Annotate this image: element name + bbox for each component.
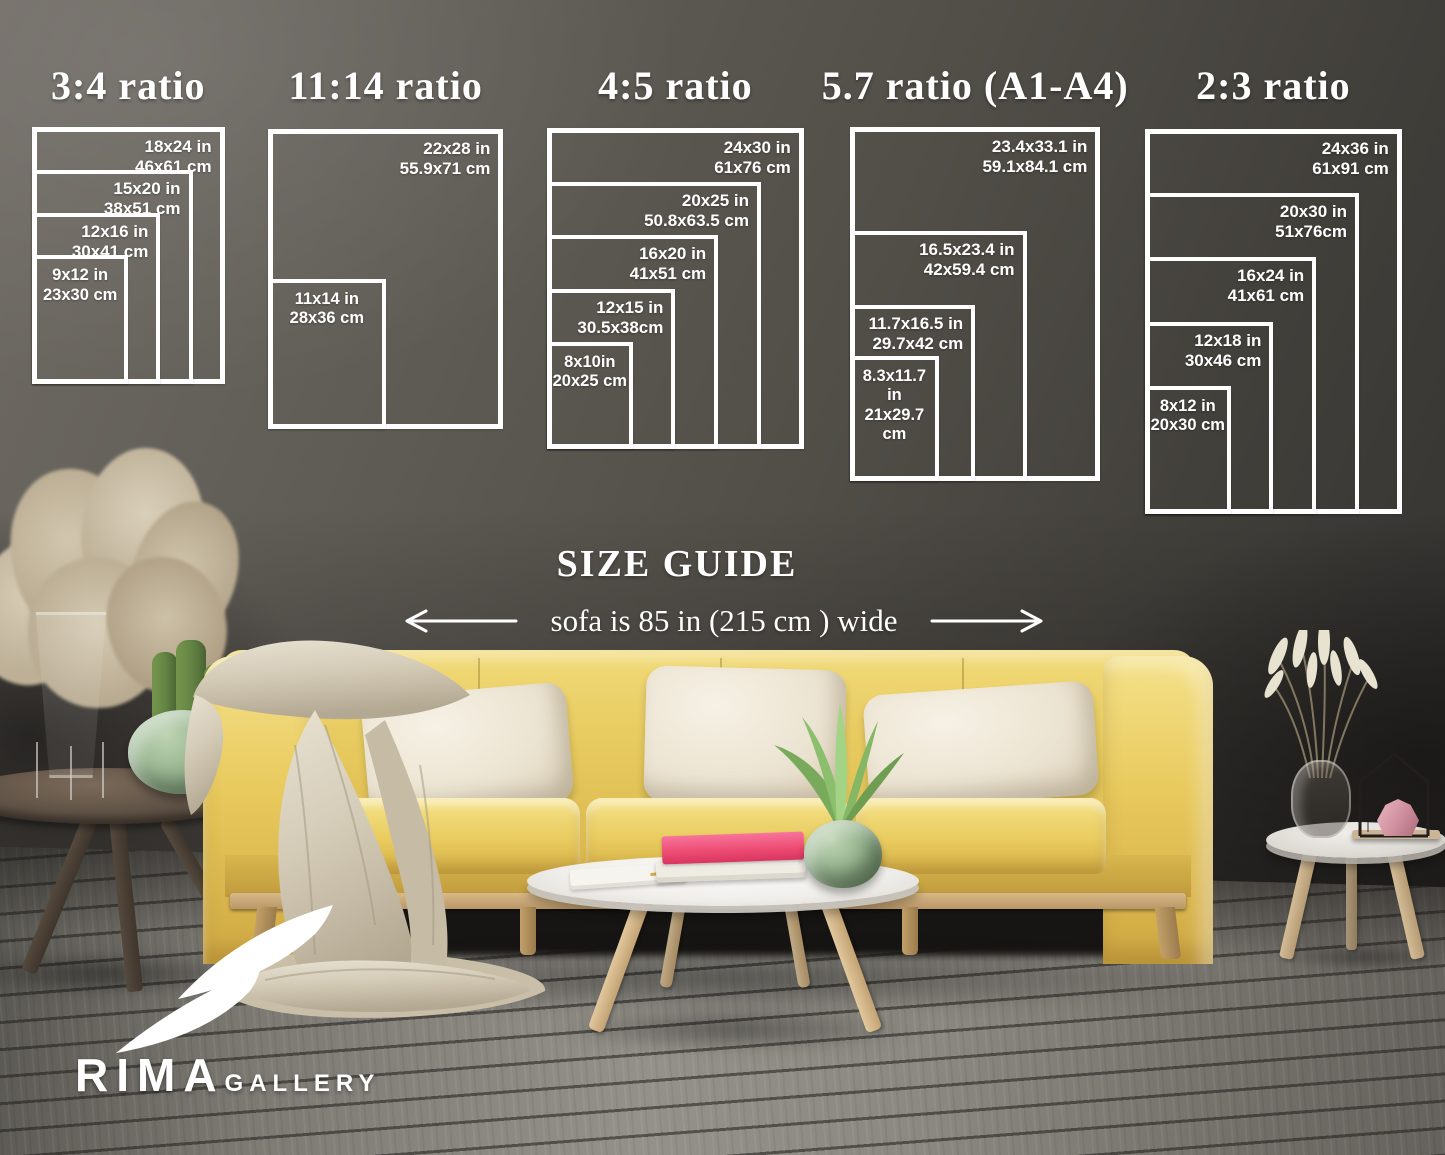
- size-label: 12x15 in30.5x38cm: [577, 298, 663, 338]
- size-cm: 59.1x84.1 cm: [982, 157, 1087, 177]
- size-cm: 20x25 cm: [551, 372, 629, 391]
- ratio-group: 24x36 in61x91 cm20x30 in51x76cm16x24 in4…: [1145, 129, 1402, 514]
- size-label: 8x10in20x25 cm: [551, 353, 629, 392]
- size-cm: 23x30 cm: [36, 286, 124, 305]
- vase-stand: [36, 742, 38, 798]
- size-box: 9x12 in23x30 cm: [32, 255, 128, 383]
- size-inches: 8.3x11.7 in: [854, 367, 935, 406]
- size-guide-heading: SIZE GUIDE: [557, 545, 798, 583]
- size-box: 8x12 in20x30 cm: [1145, 386, 1231, 514]
- size-label: 16.5x23.4 in42x59.4 cm: [919, 240, 1014, 280]
- vase-stand: [102, 742, 104, 798]
- size-cm: 55.9x71 cm: [400, 159, 491, 179]
- size-inches: 15x20 in: [104, 179, 181, 199]
- size-box: 8.3x11.7 in21x29.7 cm: [850, 356, 939, 481]
- sofa-width-text: sofa is 85 in (215 cm ) wide: [551, 602, 898, 639]
- size-box: 8x10in20x25 cm: [547, 342, 633, 449]
- size-inches: 20x30 in: [1275, 202, 1347, 222]
- size-cm: 28x36 cm: [272, 309, 382, 328]
- size-inches: 8x12 in: [1149, 397, 1227, 416]
- size-inches: 20x25 in: [644, 191, 749, 211]
- size-cm: 50.8x63.5 cm: [644, 211, 749, 231]
- size-inches: 8x10in: [551, 353, 629, 372]
- ratio-title: 11:14 ratio: [289, 66, 483, 106]
- ratio-title: 5.7 ratio (A1-A4): [822, 66, 1129, 106]
- book-pink: [662, 832, 805, 865]
- size-cm: 41x61 cm: [1228, 286, 1305, 306]
- arrow-right-icon: [930, 608, 1048, 634]
- ratio-group: 24x30 in61x76 cm20x25 in50.8x63.5 cm16x2…: [547, 128, 804, 449]
- glass-vase: [1291, 760, 1351, 838]
- ratio-title: 3:4 ratio: [51, 66, 206, 106]
- size-inches: 18x24 in: [135, 137, 212, 157]
- size-cm: 30x46 cm: [1185, 351, 1262, 371]
- size-inches: 12x15 in: [577, 298, 663, 318]
- stool-leg: [1346, 846, 1357, 950]
- size-label: 8.3x11.7 in21x29.7 cm: [854, 367, 935, 445]
- size-label: 8x12 in20x30 cm: [1149, 397, 1227, 436]
- size-label: 20x30 in51x76cm: [1275, 202, 1347, 242]
- sofa-leg: [902, 907, 918, 955]
- size-inches: 16.5x23.4 in: [919, 240, 1014, 260]
- size-inches: 11.7x16.5 in: [869, 314, 964, 334]
- size-cm: 42x59.4 cm: [919, 260, 1014, 280]
- vase-stand: [70, 746, 72, 800]
- size-inches: 24x30 in: [714, 138, 791, 158]
- size-label: 22x28 in55.9x71 cm: [400, 139, 491, 179]
- size-label: 12x18 in30x46 cm: [1185, 331, 1262, 371]
- size-label: 24x30 in61x76 cm: [714, 138, 791, 178]
- size-cm: 29.7x42 cm: [869, 334, 964, 354]
- size-inches: 22x28 in: [400, 139, 491, 159]
- size-label: 24x36 in61x91 cm: [1312, 139, 1389, 179]
- size-inches: 11x14 in: [272, 290, 382, 309]
- size-inches: 12x18 in: [1185, 331, 1262, 351]
- ratio-title: 4:5 ratio: [598, 66, 753, 106]
- size-label: 11.7x16.5 in29.7x42 cm: [869, 314, 964, 354]
- size-inches: 23.4x33.1 in: [982, 137, 1087, 157]
- ratio-group: 18x24 in46x61 cm15x20 in38x51 cm12x16 in…: [32, 127, 225, 384]
- size-cm: 30.5x38cm: [577, 318, 663, 338]
- size-label: 9x12 in23x30 cm: [36, 266, 124, 305]
- size-label: 16x20 in41x51 cm: [630, 244, 707, 284]
- size-cm: 61x76 cm: [714, 158, 791, 178]
- size-guide-mockup-scene: 3:4 ratio18x24 in46x61 cm15x20 in38x51 c…: [0, 0, 1445, 1155]
- brand-suffix: GALLERY: [225, 1072, 381, 1096]
- ratio-group: 23.4x33.1 in59.1x84.1 cm16.5x23.4 in42x5…: [850, 127, 1100, 481]
- potted-plant: [758, 695, 918, 835]
- size-inches: 9x12 in: [36, 266, 124, 285]
- size-cm: 21x29.7 cm: [854, 406, 935, 445]
- size-inches: 24x36 in: [1312, 139, 1389, 159]
- size-cm: 41x51 cm: [630, 264, 707, 284]
- brand-name: RIMA: [75, 1052, 225, 1098]
- size-label: 11x14 in28x36 cm: [272, 290, 382, 329]
- brand-logo: RIMA GALLERY: [75, 1052, 380, 1098]
- size-label: 23.4x33.1 in59.1x84.1 cm: [982, 137, 1087, 177]
- ratio-title: 2:3 ratio: [1196, 66, 1351, 106]
- size-cm: 51x76cm: [1275, 222, 1347, 242]
- size-cm: 61x91 cm: [1312, 159, 1389, 179]
- ratio-group: 22x28 in55.9x71 cm11x14 in28x36 cm: [268, 129, 503, 429]
- green-vase: [804, 820, 882, 888]
- size-cm: 20x30 cm: [1149, 416, 1227, 435]
- size-label: 20x25 in50.8x63.5 cm: [644, 191, 749, 231]
- size-inches: 12x16 in: [72, 222, 149, 242]
- size-inches: 16x20 in: [630, 244, 707, 264]
- size-label: 16x24 in41x61 cm: [1228, 266, 1305, 306]
- size-box: 11x14 in28x36 cm: [268, 279, 386, 429]
- size-inches: 16x24 in: [1228, 266, 1305, 286]
